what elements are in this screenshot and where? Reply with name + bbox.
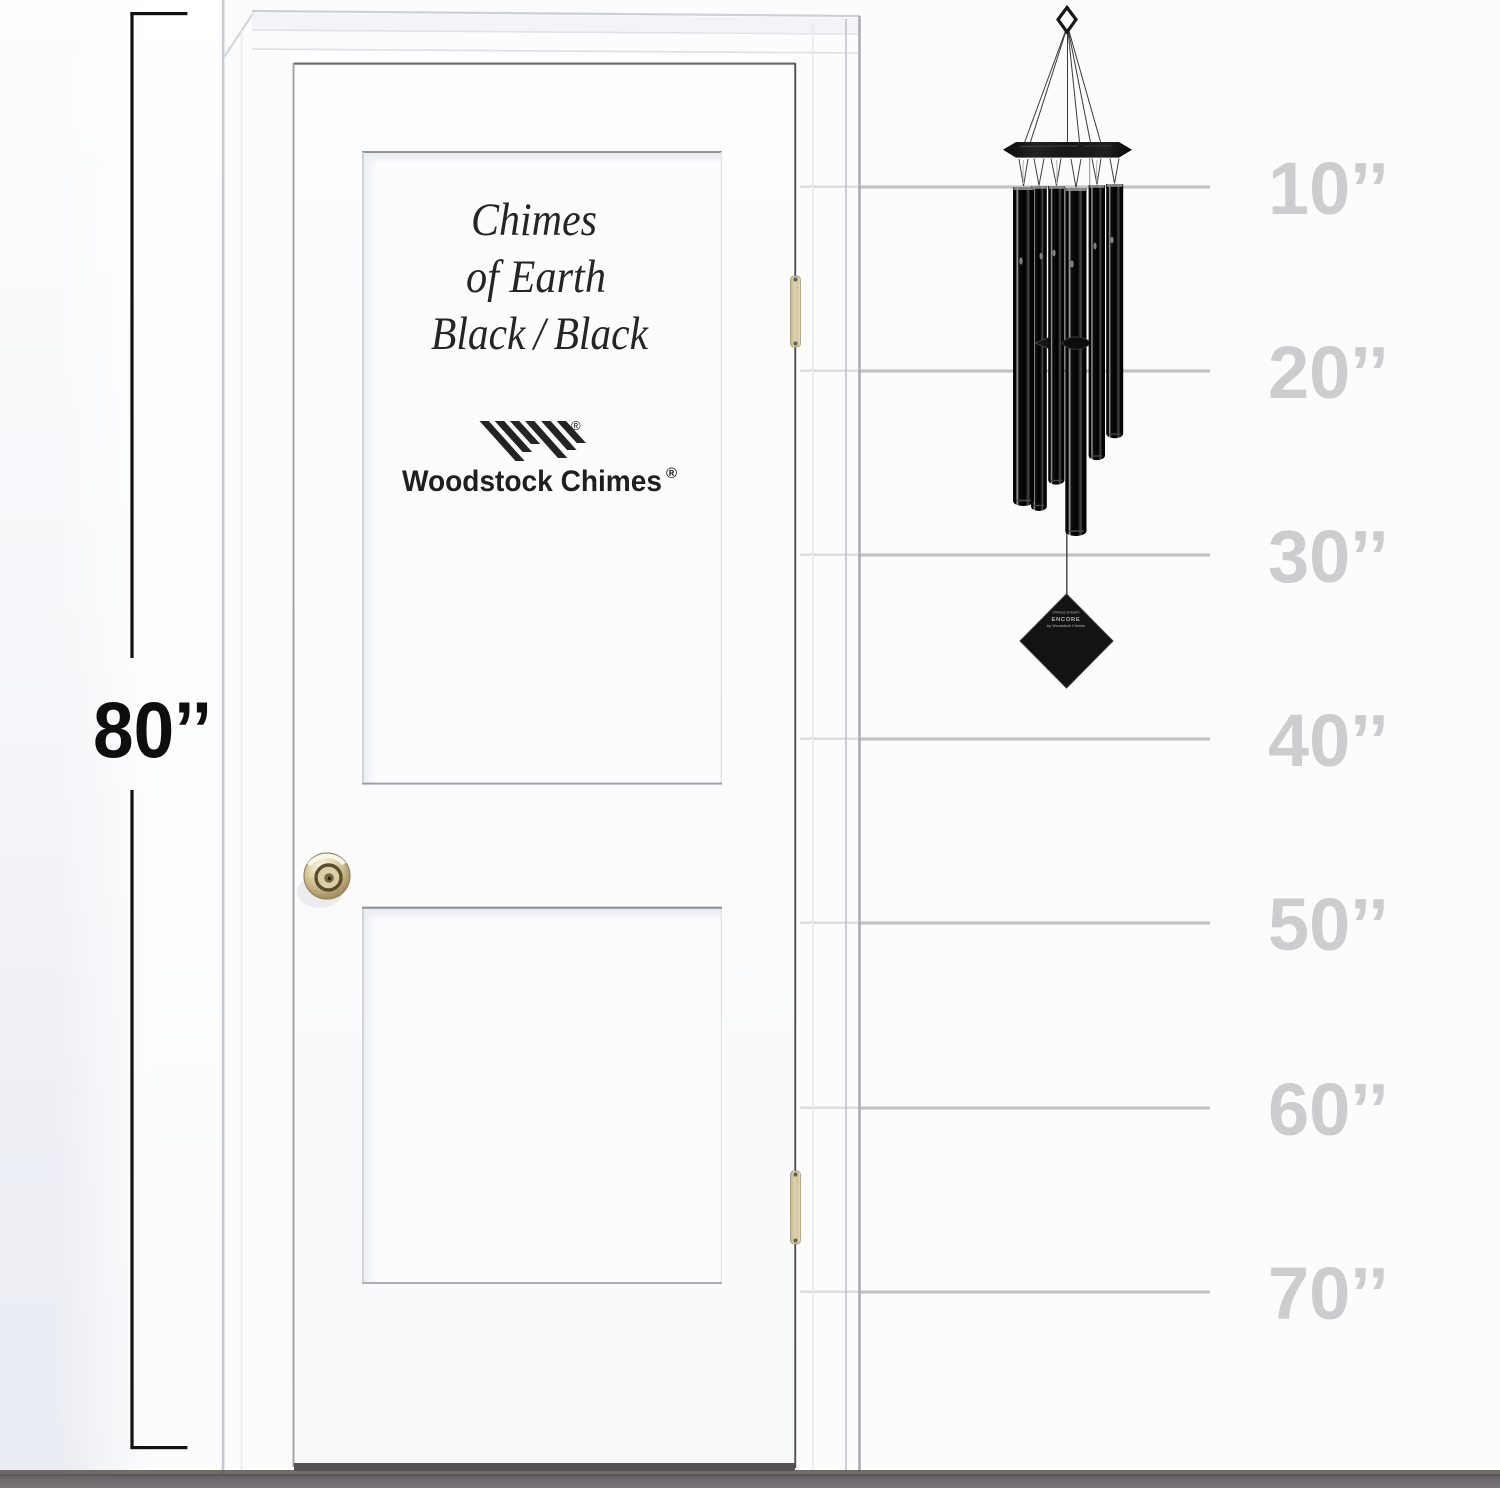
svg-text:70’’: 70’’ [1268, 1252, 1389, 1335]
svg-text:20’’: 20’’ [1268, 331, 1389, 414]
svg-text:of Earth: of Earth [466, 251, 606, 303]
svg-text:40’’: 40’’ [1268, 699, 1389, 782]
svg-text:50’’: 50’’ [1268, 883, 1389, 966]
svg-text:10’’: 10’’ [1268, 147, 1389, 230]
svg-text:by Woodstock Chimes: by Woodstock Chimes [1047, 624, 1085, 628]
svg-text:Chimes of Earth: Chimes of Earth [1052, 611, 1079, 615]
svg-text:60’’: 60’’ [1268, 1068, 1389, 1151]
svg-text:80’’: 80’’ [93, 685, 212, 774]
svg-text:Chimes: Chimes [471, 194, 597, 246]
svg-text:Woodstock Chimes: Woodstock Chimes [402, 465, 662, 498]
svg-text:ENCORE: ENCORE [1051, 617, 1080, 623]
svg-text:30’’: 30’’ [1268, 515, 1389, 598]
svg-text:®: ® [666, 465, 677, 482]
svg-text:Black / Black: Black / Black [431, 308, 649, 360]
svg-text:®: ® [571, 418, 581, 433]
